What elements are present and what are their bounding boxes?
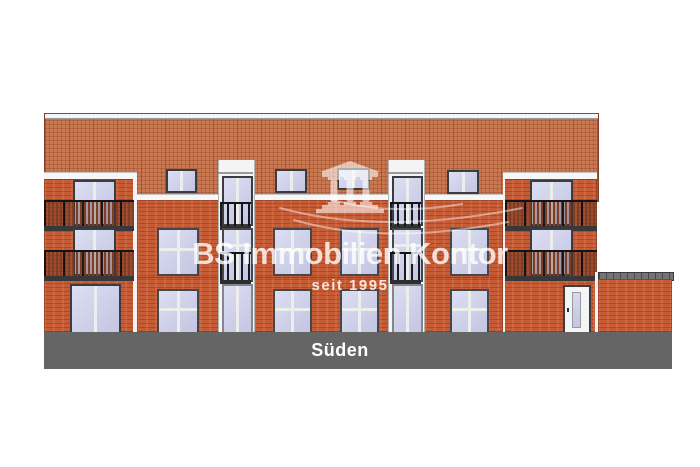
facade-window — [273, 289, 312, 334]
facade-window — [340, 289, 379, 334]
tower-cap — [218, 172, 253, 174]
juliet-railing — [220, 202, 251, 230]
roof-window — [275, 169, 307, 193]
facade-window — [157, 289, 199, 334]
watermark-tagline: seit 1995 — [250, 277, 450, 294]
portico-columns-icon — [314, 160, 386, 216]
watermark-brand: BS Immobilien Kontor — [150, 236, 550, 272]
roof-window — [166, 169, 197, 193]
patio-doors — [222, 284, 253, 336]
facade-window — [450, 289, 489, 334]
elevation-drawing: Süden BS Immobilien Kontor seit 1995 — [0, 0, 700, 467]
roof-window — [447, 170, 479, 194]
balcony-railing — [44, 200, 134, 231]
balcony-railing — [44, 250, 134, 281]
patio-doors — [70, 284, 121, 336]
corner-trim — [595, 272, 598, 332]
entry-door — [563, 285, 591, 336]
elevation-label: Süden — [44, 340, 636, 361]
tower-cap — [388, 172, 423, 174]
ground-strip: Süden — [44, 332, 672, 369]
annex-wall — [598, 279, 672, 332]
